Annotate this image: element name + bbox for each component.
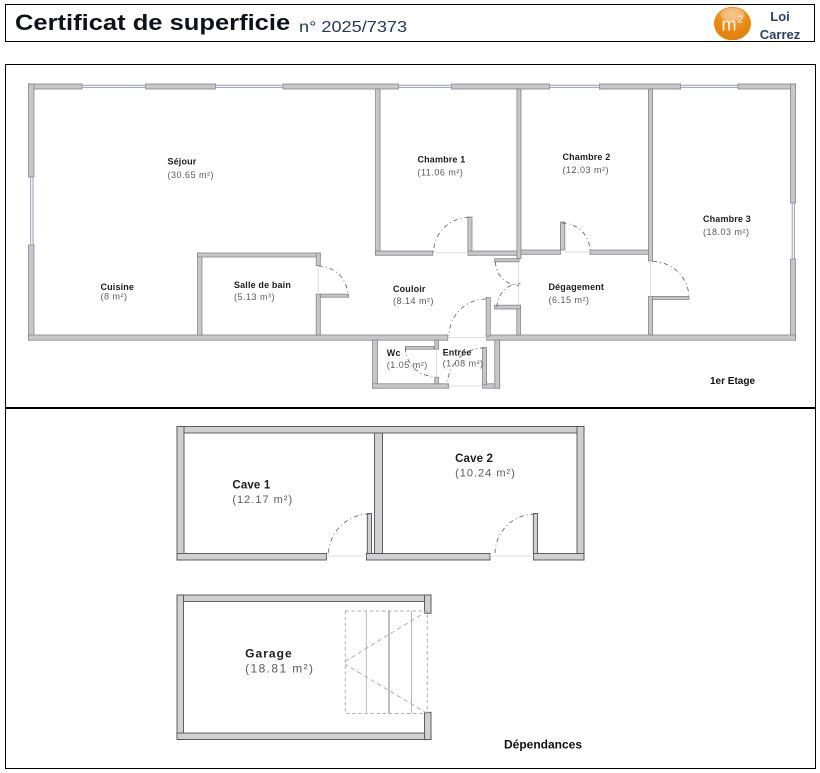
svg-text:(10.24 m²): (10.24 m²): [455, 467, 516, 479]
svg-text:(1.08 m²): (1.08 m²): [443, 359, 484, 369]
svg-text:(1.05 m²): (1.05 m²): [387, 360, 428, 370]
svg-text:Cave 1: Cave 1: [232, 480, 270, 492]
svg-text:Dépendances: Dépendances: [504, 738, 582, 752]
svg-text:(8 m²): (8 m²): [101, 291, 128, 301]
svg-text:(12.03 m²): (12.03 m²): [563, 165, 610, 175]
svg-text:Dégagement: Dégagement: [549, 282, 605, 292]
svg-text:Cave 2: Cave 2: [455, 453, 493, 465]
svg-text:Séjour: Séjour: [168, 157, 197, 167]
svg-text:(18.03 m²): (18.03 m²): [703, 227, 750, 237]
svg-text:(5.13 m³): (5.13 m³): [234, 292, 275, 302]
svg-text:(30.65 m²): (30.65 m²): [168, 170, 215, 180]
svg-text:(8.14 m²): (8.14 m²): [393, 296, 434, 306]
svg-text:Couloir: Couloir: [393, 284, 426, 294]
svg-text:(12.17 m²): (12.17 m²): [232, 494, 293, 506]
svg-text:Salle de bain: Salle de bain: [234, 280, 291, 290]
svg-text:Chambre 1: Chambre 1: [418, 155, 466, 165]
svg-text:Wc: Wc: [387, 348, 401, 358]
svg-text:Chambre 2: Chambre 2: [563, 152, 611, 162]
svg-text:(18.81 m²): (18.81 m²): [245, 662, 314, 676]
svg-text:(6.15 m²): (6.15 m²): [549, 295, 590, 305]
svg-text:Entrée: Entrée: [443, 348, 472, 358]
svg-text:1er Etage: 1er Etage: [710, 376, 755, 387]
svg-text:(11.06 m²): (11.06 m²): [418, 168, 464, 178]
svg-text:Chambre 3: Chambre 3: [703, 214, 751, 224]
svg-text:Garage: Garage: [245, 646, 293, 660]
